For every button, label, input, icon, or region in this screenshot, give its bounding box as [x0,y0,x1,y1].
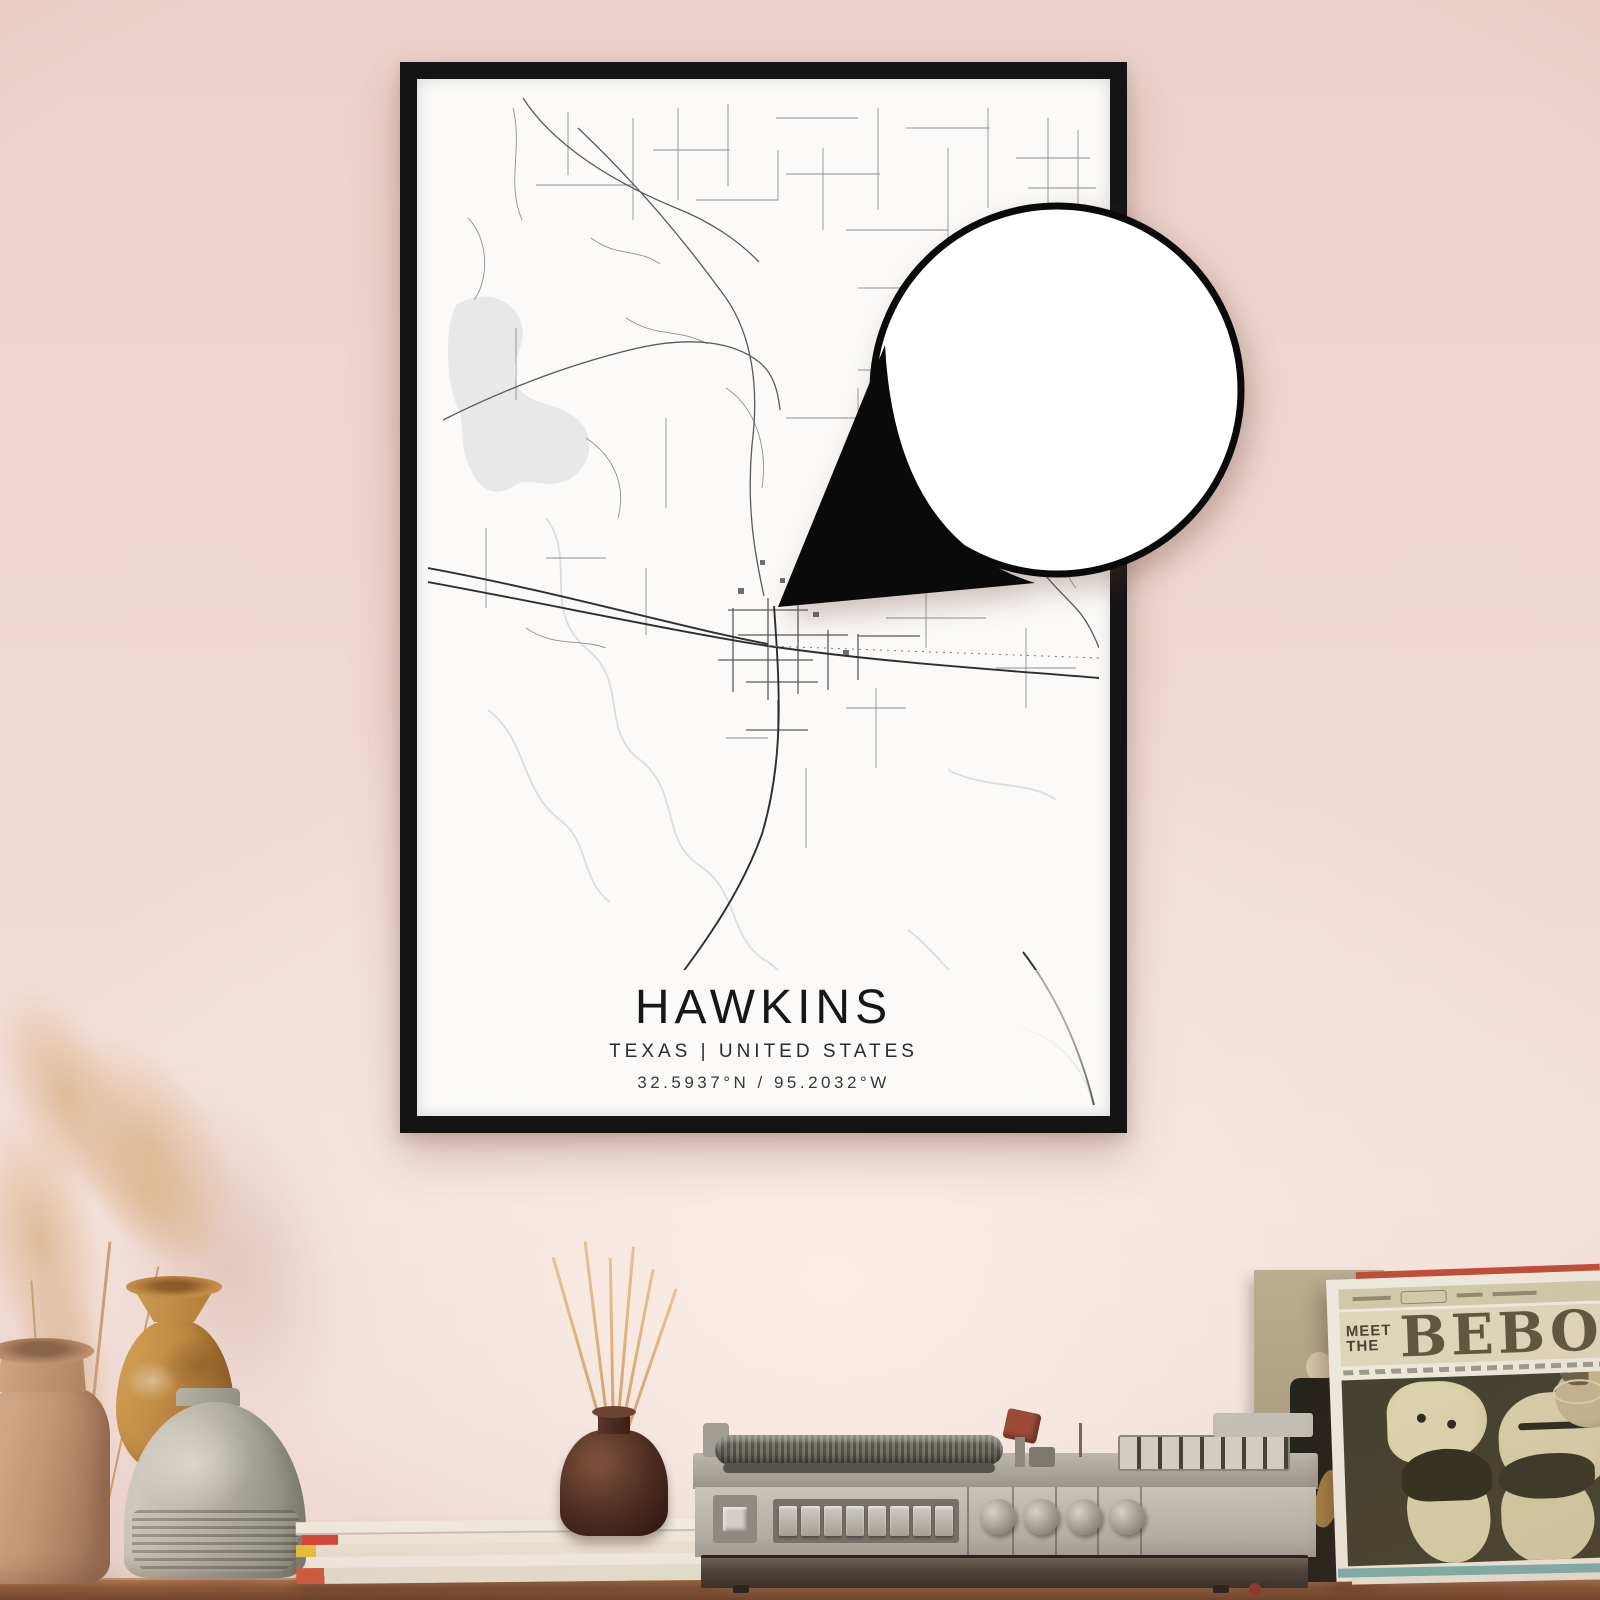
player-button [779,1506,797,1536]
figure-eye [1417,1414,1426,1423]
player-knob [1109,1499,1145,1535]
room-photo: HAWKINS TEXAS | UNITED STATES 32.5937°N … [0,0,1600,1600]
platter-base [723,1463,995,1473]
player-knob [1066,1499,1102,1535]
tonearm [1015,1437,1025,1467]
tan-ceramic-jug [0,1338,122,1588]
label-logo [1400,1289,1446,1304]
player-button [913,1506,931,1536]
poster-title: HAWKINS [428,984,1099,1033]
jug-body [0,1388,110,1584]
sleeve-title-word: THE [1346,1338,1392,1355]
player-button [890,1506,908,1536]
player-button [846,1506,864,1536]
album-art-figure [1499,1469,1596,1565]
gray-ribbed-vase [124,1388,306,1584]
fine-print-bar [1493,1291,1537,1297]
album-art-figure [1405,1461,1491,1564]
player-foot [1213,1585,1229,1593]
player-foot [733,1585,749,1593]
vase-rim [126,1276,222,1298]
diffuser-reed [622,1288,678,1442]
reed-diffuser [552,1240,682,1540]
player-lid-section [1213,1413,1313,1437]
player-power-button-cap [723,1507,747,1531]
cover-oval-badge [1553,1379,1600,1405]
diffuser-bottle [560,1430,668,1536]
fine-print-bar [1353,1296,1391,1301]
album-cover-art [1342,1371,1600,1567]
player-power-button [713,1495,757,1543]
player-knob [1023,1499,1059,1535]
record-player [693,1395,1320,1595]
poster-caption: HAWKINS TEXAS | UNITED STATES 32.5937°N … [428,970,1099,1105]
magnifier-callout [740,152,1300,652]
player-front-panel [695,1487,1316,1557]
player-foot [1249,1583,1261,1595]
player-button [824,1506,842,1536]
turntable-platter [715,1435,1003,1465]
sleeve-title-prefix: MEET THE [1346,1323,1393,1355]
antenna [1079,1423,1082,1457]
fine-print-bar [1457,1293,1483,1298]
player-key-row [1118,1435,1290,1471]
player-button [801,1506,819,1536]
bebop-record-sleeve: MEET THE BEBOP [1326,1270,1600,1582]
player-preset-buttons [773,1499,959,1543]
sleeve-title-main: BEBOP [1399,1304,1600,1363]
figure-eye [1447,1420,1456,1429]
diffuser-bottle-lip [592,1406,636,1418]
poster-region: TEXAS | UNITED STATES [428,1041,1099,1063]
sleeve-title-block: MEET THE BEBOP [1339,1303,1600,1367]
player-base [701,1555,1308,1588]
tonearm-mount [1029,1447,1055,1467]
poster-coordinates: 32.5937°N / 95.2032°W [428,1073,1099,1093]
panel-divider [967,1487,969,1557]
player-button [868,1506,886,1536]
player-button [935,1506,953,1536]
player-knob [980,1499,1016,1535]
vase-ribs [132,1510,298,1572]
